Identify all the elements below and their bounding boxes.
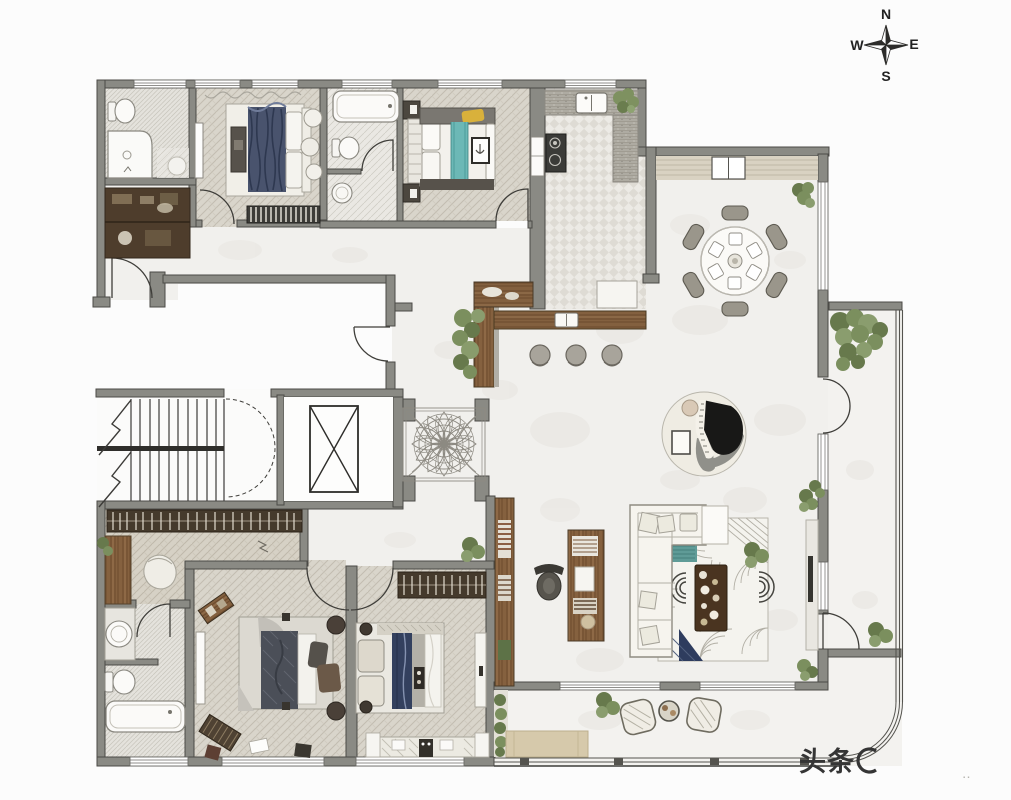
svg-text:S: S	[881, 68, 890, 84]
svg-text:W: W	[850, 37, 864, 53]
svg-text:头条: 头条	[799, 747, 855, 777]
svg-text:E: E	[909, 36, 918, 52]
svg-text:N: N	[881, 6, 891, 22]
svg-text:‥: ‥	[962, 766, 971, 781]
